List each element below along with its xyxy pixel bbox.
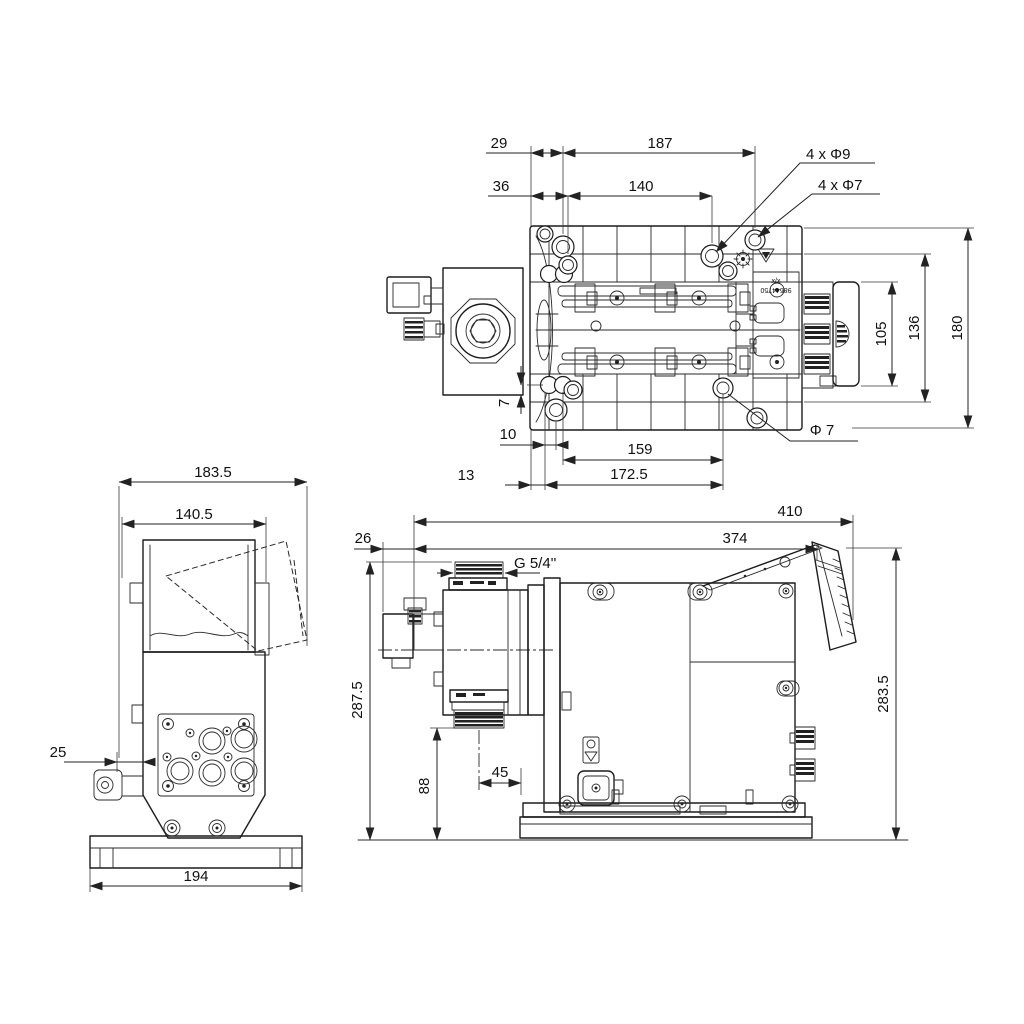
display-side-flap [255,583,269,655]
left-mid-tab [132,705,143,723]
tilted-control-panel [703,542,856,650]
plate-housing-contour [536,236,553,422]
starburst-icon [734,250,752,268]
top-view-dimensions: 29 187 36 140 4 x Φ9 4 x Φ7 105 136 180 … [458,135,974,490]
dim-label-194: 194 [183,868,208,885]
warning-triangle-icon [758,249,774,262]
right-cable-glands [790,727,815,781]
discharge-valve-thread [449,562,507,590]
thread-size-label: G 5/4'' [514,555,557,572]
dim-label-10: 10 [500,426,517,443]
pump-head-top [443,268,523,395]
dim-label-172-5: 172.5 [610,466,648,483]
dim-label-159: 159 [627,441,652,458]
drain-knob-top [404,318,444,340]
callout-4xphi9: 4 x Φ9 [806,146,851,163]
dim-label-26: 26 [355,530,372,547]
dim-label-13: 13 [458,467,475,484]
side-view: 410 26 374 G 5/4'' 287.5 88 45 283.5 [349,503,908,840]
plate-code-top: x/x [772,278,781,285]
dim-label-187: 187 [647,135,672,152]
back-panel [158,714,257,796]
side-view-dimensions: 410 26 374 G 5/4'' 287.5 88 45 283.5 [349,503,902,840]
body-side [560,583,795,812]
display-tilted-inner [294,560,303,636]
top-view: x/x 98644750 [387,135,974,490]
dim-label-105: 105 [873,321,890,346]
base-side [520,790,812,838]
front-view: 183.5 140.5 25 194 [50,464,307,892]
vent-valve-top [387,277,443,313]
dim-label-25: 25 [50,744,67,761]
dim-label-140: 140 [628,178,653,195]
dimensional-drawing: x/x 98644750 [0,0,1024,1024]
dim-label-140-5: 140.5 [175,506,213,523]
body-panel-joints [690,583,795,812]
dim-label-287-5: 287.5 [349,681,366,719]
dim-label-283-5: 283.5 [875,675,892,713]
dim-label-88: 88 [416,778,433,795]
base-front [90,820,302,868]
dim-label-374: 374 [722,530,747,547]
body-screws-side [588,583,799,696]
left-top-tab [130,583,143,603]
wall-bracket [94,770,143,800]
dim-label-36: 36 [493,178,510,195]
dim-label-29: 29 [491,135,508,152]
nameplate-connectors [750,303,784,356]
dim-label-410: 410 [777,503,802,520]
dim-label-136: 136 [906,315,923,340]
dim-label-183-5: 183.5 [194,464,232,481]
front-view-dimensions: 183.5 140.5 25 194 [50,464,307,892]
dim-label-7: 7 [496,399,513,407]
dim-label-45: 45 [492,764,509,781]
dim-label-180: 180 [949,315,966,340]
dim-label-phi7: Φ 7 [810,422,834,439]
pump-head-side [434,590,528,715]
callout-4xphi7: 4 x Φ7 [818,177,863,194]
head-flange [528,578,560,812]
warning-label [583,737,599,763]
plate-code-number: 98644750 [760,286,791,293]
signal-connector-socket [578,771,623,805]
suction-valve-thread [450,690,508,728]
vent-valve-side [383,598,443,668]
motor-end-top [802,282,859,388]
body-slot-detail [562,692,571,710]
